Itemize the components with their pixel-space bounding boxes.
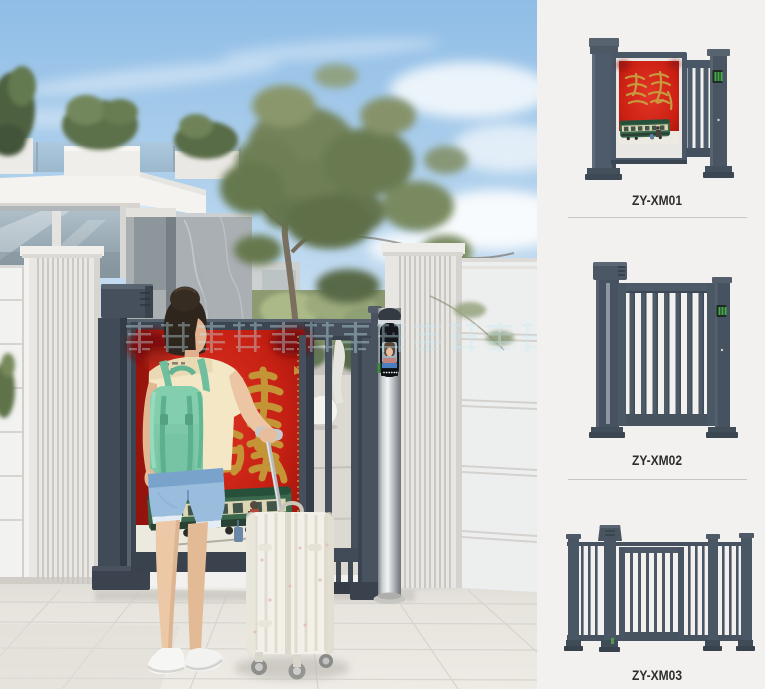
svg-text:ZY-XM03: ZY-XM03 — [632, 667, 682, 683]
svg-text:ZY-XM01: ZY-XM01 — [632, 192, 682, 208]
svg-text:ZY-XM02: ZY-XM02 — [632, 452, 682, 468]
